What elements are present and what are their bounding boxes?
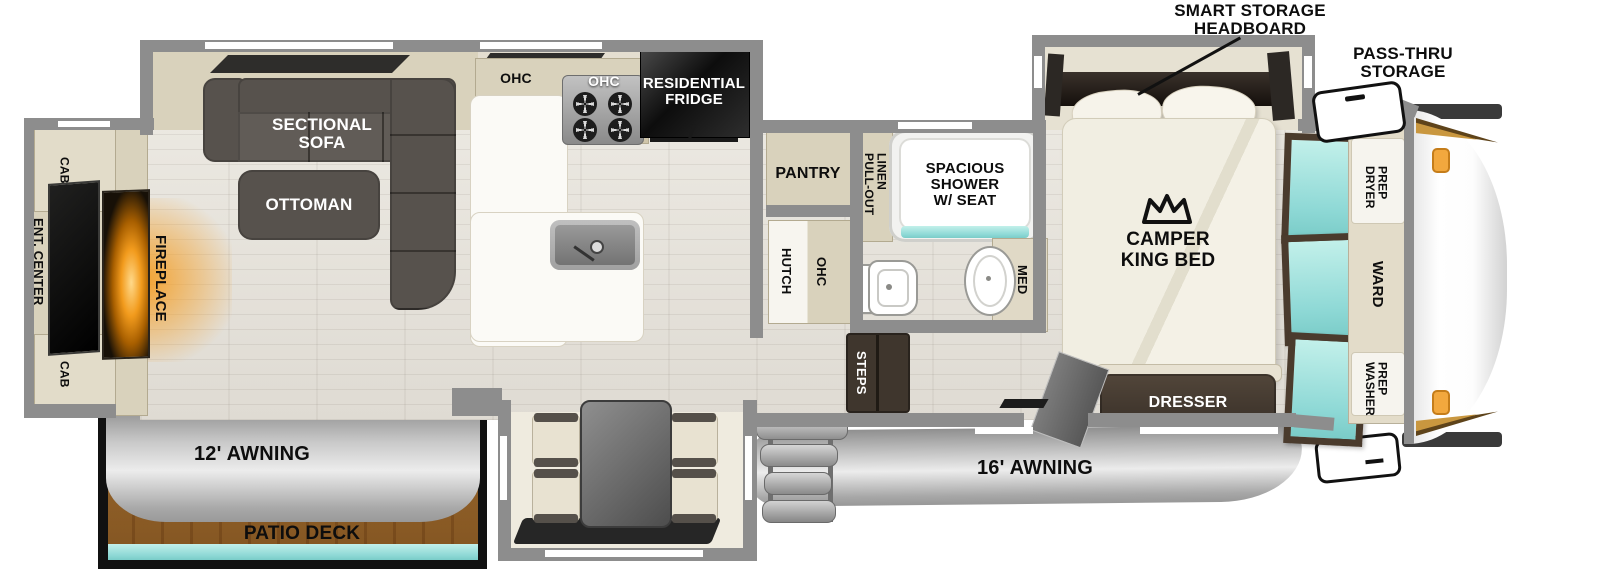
ohc-left-label: OHC xyxy=(488,70,544,88)
entry-step xyxy=(760,444,838,467)
window-mark xyxy=(1140,427,1278,434)
residential-fridge-label: RESIDENTIAL FRIDGE xyxy=(644,72,744,112)
kitchen-sink xyxy=(550,220,640,270)
camper-king-bed-label: CAMPER KING BED xyxy=(1098,228,1238,274)
shower-label: SPACIOUS SHOWER W/ SEAT xyxy=(900,152,1030,218)
wall xyxy=(1033,120,1046,333)
window-mark xyxy=(480,42,602,49)
window-mark xyxy=(898,122,972,129)
hutch-ohc-label: OHC xyxy=(810,242,832,302)
ottoman-label: OTTOMAN xyxy=(243,194,375,216)
pass-thru-door-handle xyxy=(1345,94,1366,102)
wall xyxy=(1404,110,1414,444)
burner-icon xyxy=(608,118,632,142)
wall xyxy=(756,413,1024,427)
interior-steps-divider xyxy=(876,335,879,411)
burner-icon xyxy=(573,92,597,116)
door-mat xyxy=(999,399,1048,408)
hutch-label: HUTCH xyxy=(774,230,798,312)
marker-light xyxy=(1432,148,1450,173)
rv-floorplan: CAB ENT. CENTER CAB FIREPLACE SECTIONAL … xyxy=(0,0,1600,569)
ohc-stove-label: OHC xyxy=(582,74,626,90)
awning-16-label: 16' AWNING xyxy=(950,456,1120,482)
dinette-chair xyxy=(532,470,580,522)
front-cap-body xyxy=(1408,110,1507,444)
fireplace-label: FIREPLACE xyxy=(146,212,174,344)
wall xyxy=(850,320,1046,333)
smart-storage-headboard-label: SMART STORAGE HEADBOARD xyxy=(1150,0,1350,40)
window-mark xyxy=(205,42,393,49)
toilet-drain xyxy=(886,284,892,290)
window-mark xyxy=(1304,56,1312,88)
entry-steps xyxy=(756,416,848,526)
marker-light xyxy=(1432,390,1450,415)
entry-step xyxy=(764,472,832,495)
wall xyxy=(766,205,854,217)
window-mark xyxy=(545,550,703,557)
sofa-chaise xyxy=(390,78,456,310)
entry-step xyxy=(762,500,836,523)
wall xyxy=(452,388,502,416)
wall xyxy=(140,40,153,135)
med-label: MED xyxy=(1012,254,1032,306)
cab-top-label: CAB xyxy=(50,140,78,200)
burner-icon xyxy=(573,118,597,142)
wall xyxy=(750,40,763,338)
tv-screen xyxy=(48,180,100,356)
wall xyxy=(24,404,116,418)
bath-sink xyxy=(964,246,1016,316)
wall xyxy=(1088,413,1296,427)
dresser-label: DRESSER xyxy=(1118,392,1258,414)
dryer-prep-label: DRYER PREP xyxy=(1356,152,1396,222)
ward-label: WARD xyxy=(1364,244,1390,324)
steps-label: STEPS xyxy=(850,338,872,408)
ent-center-label: ENT. CENTER xyxy=(26,202,50,322)
dinette-chair xyxy=(532,414,580,466)
cab-bottom-label: CAB xyxy=(50,346,78,402)
dinette-chair xyxy=(670,470,718,522)
living-slide-window xyxy=(210,55,410,73)
pass-thru-storage-label: PASS-THRU STORAGE xyxy=(1320,42,1486,84)
toilet-bowl xyxy=(868,260,918,316)
fridge-base xyxy=(650,138,738,142)
washer-prep-label: WASHER PREP xyxy=(1356,352,1396,426)
bath-sink-inner xyxy=(973,255,1007,307)
patio-deck-edge xyxy=(106,544,480,560)
sectional-sofa-label: SECTIONAL SOFA xyxy=(252,112,392,156)
burner-icon xyxy=(608,92,632,116)
patio-deck-label: PATIO DECK xyxy=(222,522,382,546)
dinette-chair xyxy=(670,414,718,466)
pull-out-linen-label: PULL-OUT LINEN xyxy=(858,134,892,234)
entry-platform-handle xyxy=(1365,458,1383,464)
window-mark xyxy=(58,121,110,127)
window-mark xyxy=(500,436,507,500)
dinette-table xyxy=(580,400,672,528)
shower-threshold xyxy=(901,226,1029,238)
patio-frame-bottom xyxy=(98,560,486,569)
awning-12-label: 12' AWNING xyxy=(172,442,332,468)
window-mark xyxy=(745,436,752,500)
bath-sink-drain xyxy=(986,276,991,281)
faucet-icon xyxy=(590,240,604,254)
window-mark xyxy=(975,427,1033,434)
window-mark xyxy=(1034,56,1042,88)
pantry-label: PANTRY xyxy=(768,164,848,184)
crown-icon xyxy=(1138,192,1196,228)
fireplace-insert xyxy=(102,189,150,360)
toilet-bowl-inner xyxy=(877,269,909,307)
